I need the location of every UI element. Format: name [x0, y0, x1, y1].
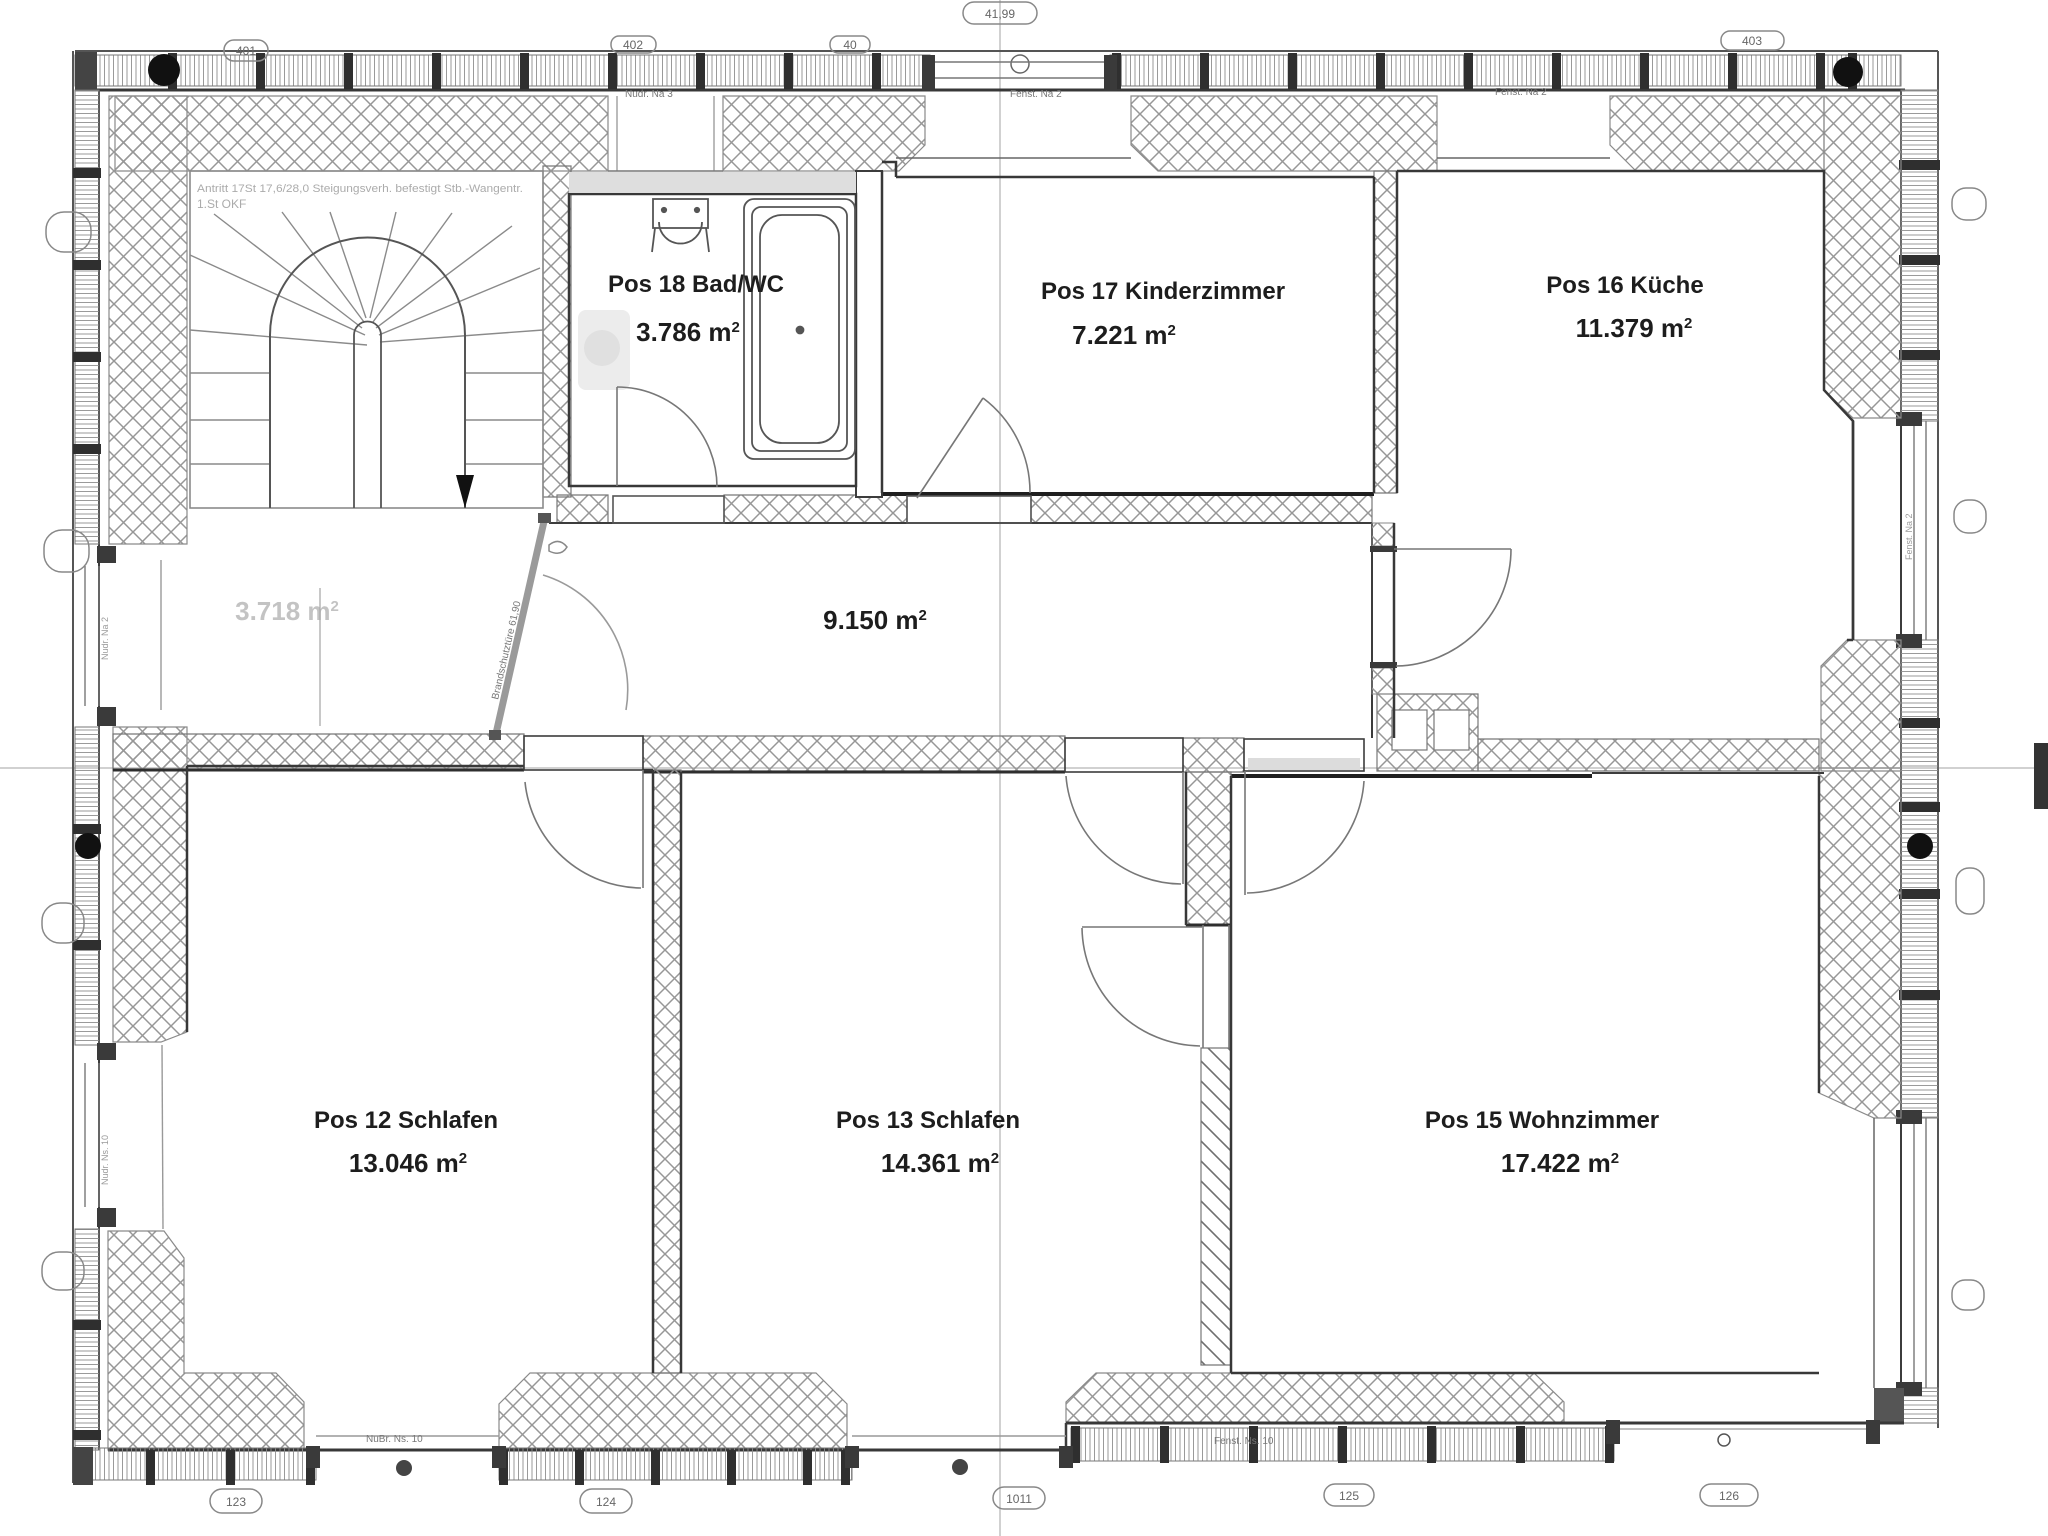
svg-text:126: 126 — [1719, 1489, 1739, 1503]
svg-text:3.786 m2: 3.786 m2 — [636, 317, 740, 347]
svg-text:Antritt 17St 17,6/28,0 Steigun: Antritt 17St 17,6/28,0 Steigungsverh. be… — [197, 183, 523, 195]
svg-text:1.St OKF: 1.St OKF — [197, 197, 246, 211]
svg-text:3.718 m2: 3.718 m2 — [235, 596, 339, 626]
svg-text:9.150 m2: 9.150 m2 — [823, 605, 927, 635]
svg-text:NuBr. Ns. 10: NuBr. Ns. 10 — [366, 1434, 423, 1445]
svg-text:Nudr. Ns. 10: Nudr. Ns. 10 — [100, 1135, 110, 1185]
svg-text:Nudr. Na 2: Nudr. Na 2 — [100, 617, 110, 660]
svg-text:Pos 17 Kinderzimmer: Pos 17 Kinderzimmer — [1041, 278, 1285, 305]
svg-text:Pos 18 Bad/WC: Pos 18 Bad/WC — [608, 271, 784, 298]
svg-text:17.422 m2: 17.422 m2 — [1501, 1148, 1619, 1178]
svg-text:Pos 15 Wohnzimmer: Pos 15 Wohnzimmer — [1425, 1107, 1659, 1134]
svg-text:Pos 13 Schlafen: Pos 13 Schlafen — [836, 1107, 1020, 1134]
svg-text:14.361 m2: 14.361 m2 — [881, 1148, 999, 1178]
svg-text:Nudr. Na 3: Nudr. Na 3 — [625, 89, 673, 100]
svg-text:13.046 m2: 13.046 m2 — [349, 1148, 467, 1178]
svg-text:11.379 m2: 11.379 m2 — [1576, 313, 1693, 343]
svg-text:7.221 m2: 7.221 m2 — [1072, 320, 1176, 350]
svg-text:401: 401 — [236, 44, 256, 58]
svg-text:125: 125 — [1339, 1489, 1359, 1503]
svg-text:40: 40 — [843, 38, 857, 52]
svg-text:Fenst. Na 2: Fenst. Na 2 — [1495, 87, 1547, 98]
svg-text:1011: 1011 — [1006, 1492, 1032, 1506]
svg-text:124: 124 — [596, 1495, 616, 1509]
svg-text:123: 123 — [226, 1495, 246, 1509]
svg-text:Fenst. Na 2: Fenst. Na 2 — [1010, 89, 1062, 100]
svg-text:41,99: 41,99 — [985, 7, 1015, 21]
svg-text:Pos 16 Küche: Pos 16 Küche — [1546, 272, 1703, 299]
svg-text:403: 403 — [1742, 34, 1762, 48]
svg-text:Fenst. Na 2: Fenst. Na 2 — [1904, 513, 1914, 560]
svg-text:402: 402 — [623, 38, 643, 52]
svg-text:Fenst. Ns. 10: Fenst. Ns. 10 — [1214, 1436, 1274, 1447]
svg-text:Pos 12 Schlafen: Pos 12 Schlafen — [314, 1107, 498, 1134]
